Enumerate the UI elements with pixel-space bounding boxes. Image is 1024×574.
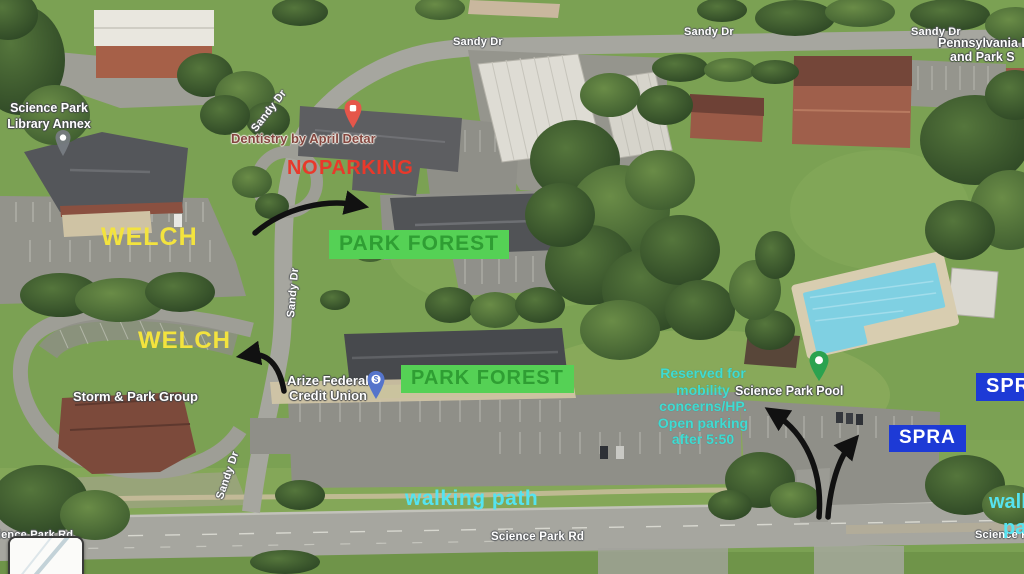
poi-label-library-annex[interactable]: Science Park Library Annex	[1, 101, 97, 132]
inset-road-lines	[10, 538, 78, 574]
poi-label-line: Library Annex	[1, 117, 97, 133]
credit-union-pin-icon[interactable]: $	[367, 371, 385, 404]
poi-label-dentistry[interactable]: Dentistry by April Detar	[231, 131, 376, 146]
poi-label-arize-credit-union[interactable]: Arize Federal Credit Union	[284, 373, 372, 403]
park-forest-annotation-lower: PARK FOREST	[401, 365, 574, 393]
no-parking-annotation: NO PARKING	[287, 157, 413, 180]
note-line: Reserved for	[650, 365, 756, 382]
spra-annotation-lower: SPRA	[889, 425, 966, 452]
note-line: concerns/HP.	[650, 398, 756, 415]
welch-annotation-upper: WELCH	[101, 223, 198, 252]
poi-label-pennsylvania: and Park S	[950, 50, 1015, 64]
spra-annotation-upper: SPRA	[976, 373, 1024, 401]
welch-annotation-lower: WELCH	[138, 327, 231, 355]
park-forest-annotation-upper: PARK FOREST	[329, 230, 509, 259]
street-label-science-park-rd: Science Park Rd	[491, 531, 584, 543]
reserved-parking-note: Reserved for mobility concerns/HP. Open …	[650, 365, 756, 448]
note-line: Open parking	[650, 415, 756, 432]
poi-label-storm-park-group[interactable]: Storm & Park Group	[73, 389, 198, 404]
walking-path-annotation-edge: walking	[989, 491, 1024, 514]
walking-path-annotation: walking path	[405, 487, 538, 511]
walking-path-annotation-edge: path	[1003, 517, 1024, 540]
dollar-sign-icon: $	[374, 375, 379, 384]
library-pin-icon[interactable]	[55, 130, 71, 161]
map-canvas[interactable]: Sandy Dr Sandy Dr Sandy Dr Sandy Dr Sand…	[0, 0, 1024, 574]
poi-label-line: Arize Federal	[284, 373, 372, 388]
note-line: after 5:50	[650, 431, 756, 448]
map-preview-inset[interactable]	[8, 536, 84, 574]
poi-label-line: Credit Union	[284, 388, 372, 403]
poi-label-line: Science Park	[1, 101, 97, 117]
street-label-sandy-dr: Sandy Dr	[684, 26, 734, 38]
street-label-sandy-dr: Sandy Dr	[453, 36, 503, 48]
poi-label-pennsylvania: Pennsylvania F	[938, 36, 1024, 50]
dentistry-pin-icon[interactable]	[344, 100, 362, 133]
pool-pin-icon[interactable]	[809, 351, 829, 386]
note-line: mobility	[650, 382, 756, 399]
